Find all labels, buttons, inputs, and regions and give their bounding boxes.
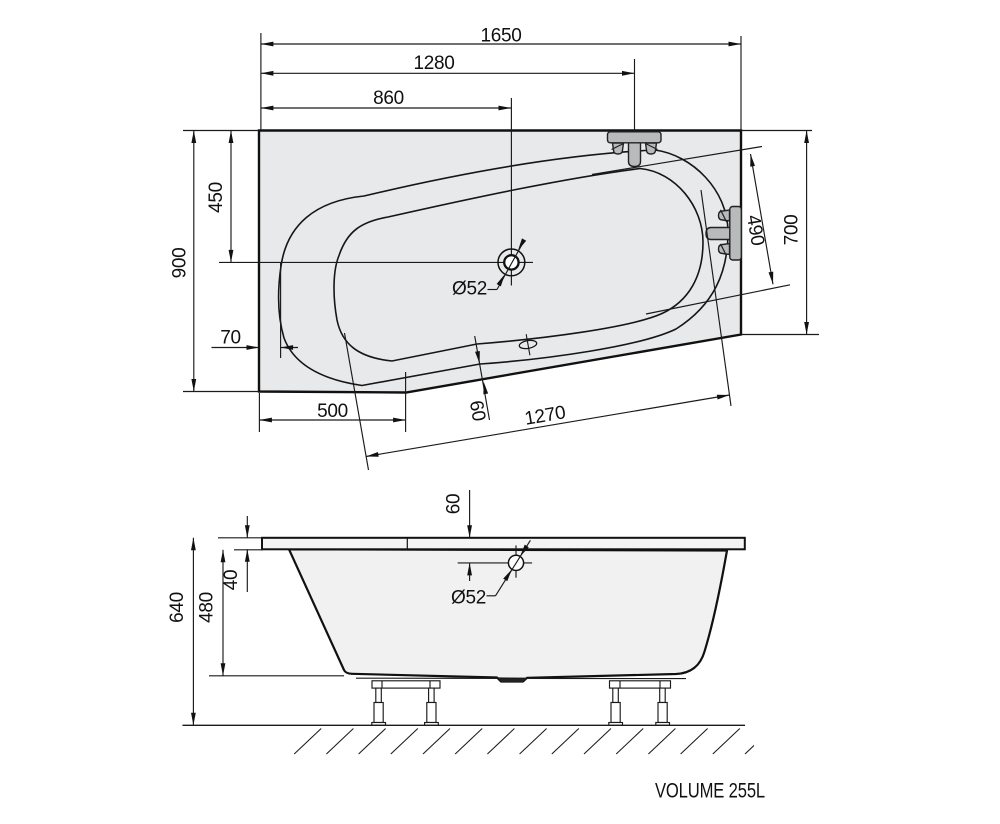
svg-text:1280: 1280 (413, 53, 454, 74)
svg-text:Ø52: Ø52 (452, 279, 487, 300)
svg-text:70: 70 (220, 328, 241, 349)
svg-text:1270: 1270 (523, 402, 567, 430)
svg-text:640: 640 (167, 592, 188, 623)
svg-text:480: 480 (197, 592, 218, 623)
svg-text:40: 40 (221, 570, 242, 591)
svg-text:860: 860 (373, 88, 404, 109)
svg-text:60: 60 (465, 399, 489, 423)
svg-text:60: 60 (444, 494, 465, 515)
svg-text:1650: 1650 (480, 26, 521, 47)
svg-text:490: 490 (742, 213, 768, 247)
svg-text:900: 900 (170, 248, 191, 279)
svg-text:Ø52: Ø52 (451, 588, 486, 609)
svg-text:500: 500 (317, 401, 348, 422)
svg-text:450: 450 (206, 182, 227, 213)
svg-text:700: 700 (782, 215, 803, 246)
svg-text:VOLUME 255L: VOLUME 255L (655, 779, 765, 803)
